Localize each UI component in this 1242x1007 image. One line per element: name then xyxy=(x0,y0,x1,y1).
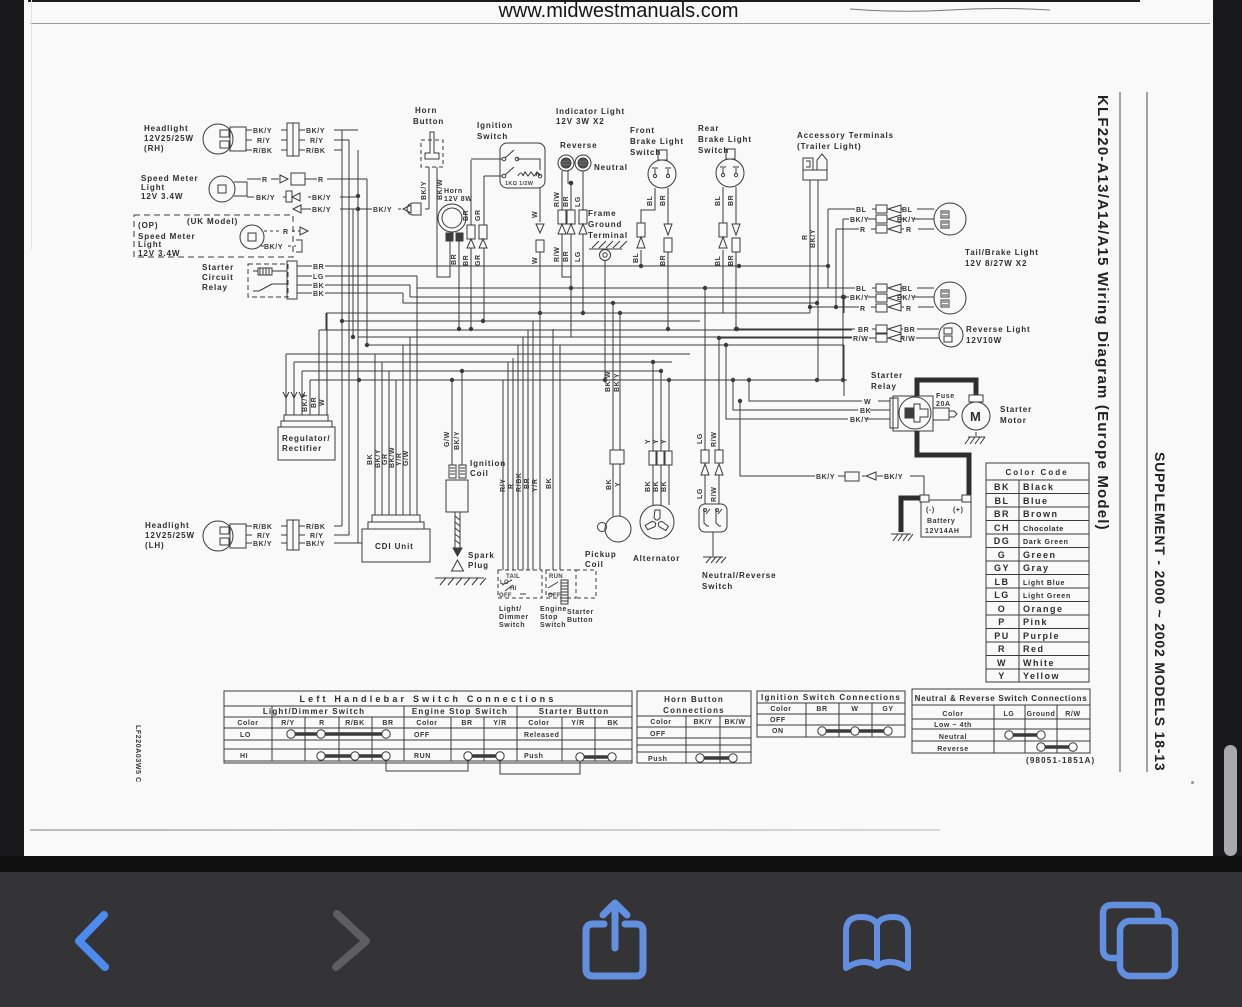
svg-text:LO: LO xyxy=(240,732,251,739)
svg-text:Y/R: Y/R xyxy=(571,720,584,727)
svg-text:LF220A03W5 C: LF220A03W5 C xyxy=(134,725,141,783)
svg-text:12V 8W: 12V 8W xyxy=(444,196,473,203)
svg-text:BK/Y: BK/Y xyxy=(375,449,382,468)
svg-text:SUPPLEMENT - 2000 ~ 2002 MODEL: SUPPLEMENT - 2000 ~ 2002 MODELS 18-13 xyxy=(1152,452,1168,771)
svg-text:Color Code: Color Code xyxy=(1005,468,1068,477)
svg-text:Reverse: Reverse xyxy=(937,746,968,753)
svg-text:Button: Button xyxy=(413,117,444,126)
svg-text:W: W xyxy=(532,257,539,264)
svg-text:R: R xyxy=(802,234,809,240)
svg-text:Tail/Brake Light: Tail/Brake Light xyxy=(965,248,1039,257)
svg-text:BK/Y: BK/Y xyxy=(454,431,461,450)
svg-text:BK: BK xyxy=(546,478,553,489)
svg-text:BR: BR xyxy=(994,509,1010,519)
svg-text:Starter: Starter xyxy=(1000,405,1032,414)
svg-text:BL: BL xyxy=(647,195,654,206)
svg-text:BR: BR xyxy=(524,478,531,489)
svg-text:BK/Y: BK/Y xyxy=(253,541,272,548)
svg-text:(-): (-) xyxy=(926,507,935,514)
svg-text:Color: Color xyxy=(650,719,671,726)
svg-text:HI: HI xyxy=(510,586,517,592)
svg-text:Horn: Horn xyxy=(444,188,463,195)
svg-text:LB: LB xyxy=(995,577,1010,587)
svg-text:White: White xyxy=(1023,658,1055,668)
svg-text:LG: LG xyxy=(994,590,1010,600)
svg-text:12V25/25W: 12V25/25W xyxy=(145,531,195,540)
svg-text:R: R xyxy=(906,306,912,313)
svg-text:Light/Dimmer Switch: Light/Dimmer Switch xyxy=(263,707,365,716)
svg-text:GY: GY xyxy=(994,563,1010,573)
svg-text:BR: BR xyxy=(904,327,915,334)
svg-text:Stop: Stop xyxy=(540,614,558,621)
svg-text:BK/Y: BK/Y xyxy=(302,393,309,412)
svg-text:12V 3.4W: 12V 3.4W xyxy=(138,249,180,258)
svg-text:LG: LG xyxy=(313,274,324,281)
svg-text:Push: Push xyxy=(524,753,544,760)
svg-text:BK/Y: BK/Y xyxy=(897,217,916,224)
svg-text:Y: Y xyxy=(998,671,1006,681)
svg-text:Color: Color xyxy=(237,720,258,727)
svg-text:Chocolate: Chocolate xyxy=(1023,524,1064,533)
svg-text:R/BK: R/BK xyxy=(306,148,326,155)
svg-text:R/Y: R/Y xyxy=(281,720,294,727)
svg-text:G/W: G/W xyxy=(403,450,410,466)
svg-text:GR: GR xyxy=(475,254,482,266)
svg-text:(UK Model): (UK Model) xyxy=(187,217,238,226)
svg-text:HI: HI xyxy=(240,753,248,760)
svg-text:Low ~ 4th: Low ~ 4th xyxy=(934,722,972,729)
svg-text:BK/Y: BK/Y xyxy=(312,207,331,214)
svg-text:(Trailer Light): (Trailer Light) xyxy=(797,142,862,151)
svg-text:Reverse Light: Reverse Light xyxy=(966,325,1031,334)
svg-text:Neutral/Reverse: Neutral/Reverse xyxy=(702,571,776,580)
svg-text:BR: BR xyxy=(660,195,667,206)
svg-text:CDI Unit: CDI Unit xyxy=(375,542,414,551)
svg-text:LG: LG xyxy=(575,196,582,207)
svg-text:BK/Y: BK/Y xyxy=(306,128,325,135)
svg-text:Fuse: Fuse xyxy=(936,393,955,400)
svg-text:BK: BK xyxy=(653,481,660,492)
svg-text:Y: Y xyxy=(645,439,652,444)
svg-text:(98051-1851A): (98051-1851A) xyxy=(1026,756,1095,765)
svg-text:BR: BR xyxy=(313,264,324,271)
svg-text:W: W xyxy=(319,399,326,406)
svg-text:R/W: R/W xyxy=(853,336,868,343)
svg-text:R: R xyxy=(906,227,912,234)
svg-text:BR: BR xyxy=(563,196,570,207)
svg-text:OFF: OFF xyxy=(414,732,430,739)
svg-text:R/Y: R/Y xyxy=(310,138,323,145)
svg-text:BK/Y: BK/Y xyxy=(256,195,275,202)
svg-text:Indicator Light: Indicator Light xyxy=(556,107,625,116)
svg-text:R/W: R/W xyxy=(711,487,718,502)
svg-text:BK/Y: BK/Y xyxy=(312,195,331,202)
svg-text:R: R xyxy=(318,177,324,184)
svg-text:Spark: Spark xyxy=(468,551,495,560)
svg-text:Gray: Gray xyxy=(1023,563,1050,573)
svg-text:Light: Light xyxy=(138,240,162,249)
svg-text:BR: BR xyxy=(728,195,735,206)
svg-text:BL: BL xyxy=(715,255,722,266)
svg-text:BK: BK xyxy=(367,454,374,465)
svg-text:BK/Y: BK/Y xyxy=(421,181,428,200)
svg-text:BK: BK xyxy=(860,408,871,415)
svg-text:GR: GR xyxy=(475,209,482,221)
svg-text:12V25/25W: 12V25/25W xyxy=(144,134,194,143)
svg-text:Speed Meter: Speed Meter xyxy=(141,174,198,183)
svg-text:Headlight: Headlight xyxy=(144,124,189,133)
svg-text:BR: BR xyxy=(311,397,318,408)
svg-text:1KΩ 1/2W: 1KΩ 1/2W xyxy=(505,181,534,187)
svg-text:DG: DG xyxy=(994,536,1011,546)
svg-text:Switch: Switch xyxy=(499,622,525,629)
svg-text:KLF220-A13/A14/A15 Wiring Diag: KLF220-A13/A14/A15 Wiring Diagram (Europ… xyxy=(1094,95,1111,531)
svg-text:CH: CH xyxy=(994,523,1010,533)
svg-text:R/Y: R/Y xyxy=(257,138,270,145)
svg-text:R: R xyxy=(508,483,515,489)
svg-text:Purple: Purple xyxy=(1023,631,1060,641)
svg-text:BK/Y: BK/Y xyxy=(850,217,869,224)
svg-text:Black: Black xyxy=(1023,482,1055,492)
svg-text:Light Green: Light Green xyxy=(1023,593,1071,600)
svg-text:ON: ON xyxy=(772,728,784,735)
svg-text:(OP): (OP) xyxy=(138,221,159,230)
svg-text:Color: Color xyxy=(942,711,963,718)
svg-text:Ground: Ground xyxy=(588,220,622,229)
svg-text:LG: LG xyxy=(1004,711,1015,718)
svg-text:R/BK: R/BK xyxy=(253,524,273,531)
svg-text:LG: LG xyxy=(575,251,582,262)
svg-text:Regulator/: Regulator/ xyxy=(282,434,331,443)
svg-text:Released: Released xyxy=(524,732,560,739)
svg-text:R: R xyxy=(998,644,1006,654)
svg-text:Pickup: Pickup xyxy=(585,550,617,559)
svg-text:12V14AH: 12V14AH xyxy=(925,528,960,535)
svg-text:Relay: Relay xyxy=(202,283,228,292)
svg-text:Switch: Switch xyxy=(630,148,661,157)
svg-text:Light: Light xyxy=(141,183,165,192)
svg-text:R: R xyxy=(283,229,289,236)
svg-text:PU: PU xyxy=(994,631,1010,641)
svg-text:BK: BK xyxy=(313,283,324,290)
svg-text:R/BK: R/BK xyxy=(253,148,273,155)
svg-text:Starter: Starter xyxy=(871,371,903,380)
svg-text:W: W xyxy=(851,706,858,713)
svg-text:Push: Push xyxy=(648,756,668,763)
svg-text:LG: LG xyxy=(697,433,704,444)
svg-text:R/Y: R/Y xyxy=(500,479,507,492)
svg-text:R/W: R/W xyxy=(554,192,561,207)
svg-text:Engine: Engine xyxy=(540,606,567,613)
svg-text:BR: BR xyxy=(728,255,735,266)
svg-text:Starter: Starter xyxy=(567,609,594,616)
svg-text:Y: Y xyxy=(661,439,668,444)
svg-text:OFF: OFF xyxy=(770,717,786,724)
svg-text:Frame: Frame xyxy=(588,209,617,218)
svg-text:Starter: Starter xyxy=(202,263,234,272)
svg-text:Front: Front xyxy=(630,126,655,135)
svg-text:Terminal: Terminal xyxy=(588,231,628,240)
svg-text:Y/R: Y/R xyxy=(532,479,539,492)
svg-text:Pink: Pink xyxy=(1023,617,1048,627)
svg-text:12V 8/27W X2: 12V 8/27W X2 xyxy=(965,259,1027,268)
svg-text:W: W xyxy=(864,399,871,406)
svg-text:BK: BK xyxy=(645,481,652,492)
svg-text:Green: Green xyxy=(1023,550,1057,560)
svg-text:Coil: Coil xyxy=(470,469,489,478)
svg-text:BL: BL xyxy=(902,286,913,293)
svg-text:BR: BR xyxy=(451,254,458,265)
svg-text:LG: LG xyxy=(697,488,704,499)
svg-text:BR: BR xyxy=(463,210,470,221)
svg-text:Light/: Light/ xyxy=(499,606,522,613)
svg-text:BR: BR xyxy=(463,255,470,266)
svg-text:BK/Y: BK/Y xyxy=(884,474,903,481)
svg-text:Red: Red xyxy=(1023,644,1045,654)
svg-text:Alternator: Alternator xyxy=(633,554,680,563)
svg-text:BR: BR xyxy=(816,706,827,713)
svg-text:G/W: G/W xyxy=(444,431,451,447)
svg-text:R/BK: R/BK xyxy=(306,524,326,531)
svg-text:Ignition: Ignition xyxy=(477,121,513,130)
svg-text:BK/Y: BK/Y xyxy=(693,719,712,726)
svg-text:BK/Y: BK/Y xyxy=(264,244,283,251)
svg-text:GY: GY xyxy=(882,706,893,713)
svg-text:Y: Y xyxy=(653,439,660,444)
svg-text:Switch: Switch xyxy=(698,146,729,155)
svg-text:Starter Button: Starter Button xyxy=(539,707,610,716)
svg-text:P: P xyxy=(998,617,1006,627)
svg-text:12V 3.4W: 12V 3.4W xyxy=(141,192,183,201)
svg-text:BK/Y: BK/Y xyxy=(373,207,392,214)
svg-text:Horn Button: Horn Button xyxy=(664,695,724,704)
svg-text:Relay: Relay xyxy=(871,382,897,391)
svg-text:Rectifier: Rectifier xyxy=(282,444,322,453)
svg-text:R/W: R/W xyxy=(900,336,915,343)
svg-text:Horn: Horn xyxy=(415,106,437,115)
svg-text:BK/W: BK/W xyxy=(437,179,444,200)
svg-text:Y/R: Y/R xyxy=(396,453,403,466)
svg-text:Y/R: Y/R xyxy=(493,720,506,727)
svg-text:O: O xyxy=(998,604,1007,614)
svg-text:BK/Y: BK/Y xyxy=(614,373,621,392)
svg-text:BK: BK xyxy=(661,481,668,492)
svg-text:BL: BL xyxy=(633,252,640,263)
svg-text:(LH): (LH) xyxy=(145,541,165,550)
svg-text:BK: BK xyxy=(607,720,618,727)
svg-text:R/W: R/W xyxy=(711,432,718,447)
svg-text:Color: Color xyxy=(416,720,437,727)
svg-text:R/Y: R/Y xyxy=(257,533,270,540)
svg-text:BL: BL xyxy=(995,496,1010,506)
svg-text:Left Handlebar Switch Connecti: Left Handlebar Switch Connections xyxy=(299,694,556,704)
svg-text:R: R xyxy=(860,306,866,313)
svg-text:RUN: RUN xyxy=(414,753,431,760)
svg-text:Switch: Switch xyxy=(702,582,733,591)
svg-text:BR: BR xyxy=(563,251,570,262)
svg-text:(+): (+) xyxy=(953,507,964,514)
svg-text:Color: Color xyxy=(528,720,549,727)
svg-text:OFF: OFF xyxy=(650,731,666,738)
svg-text:BK: BK xyxy=(994,482,1010,492)
svg-text:Brown: Brown xyxy=(1023,509,1059,519)
svg-text:Headlight: Headlight xyxy=(145,521,190,530)
svg-text:Brake Light: Brake Light xyxy=(630,137,684,146)
svg-text:R: R xyxy=(860,227,866,234)
svg-text:Accessory Terminals: Accessory Terminals xyxy=(797,131,894,140)
svg-text:BK/W: BK/W xyxy=(389,447,396,468)
svg-text:Dimmer: Dimmer xyxy=(499,614,529,621)
svg-text:BL: BL xyxy=(856,207,867,214)
svg-text:Orange: Orange xyxy=(1023,604,1064,614)
svg-text:OFF: OFF xyxy=(548,593,561,599)
svg-text:Connections: Connections xyxy=(663,706,725,715)
svg-text:BK/Y: BK/Y xyxy=(810,229,817,248)
svg-text:BK/W: BK/W xyxy=(724,719,745,726)
svg-text:BK/Y: BK/Y xyxy=(253,128,272,135)
svg-text:Engine Stop Switch: Engine Stop Switch xyxy=(412,707,508,716)
svg-text:12V10W: 12V10W xyxy=(966,336,1002,345)
svg-text:Switch: Switch xyxy=(477,132,508,141)
svg-text:12V 3W X2: 12V 3W X2 xyxy=(556,117,605,126)
svg-text:R/W: R/W xyxy=(554,247,561,262)
svg-text:BK/Y: BK/Y xyxy=(816,474,835,481)
svg-text:BK: BK xyxy=(606,479,613,490)
svg-text:Blue: Blue xyxy=(1023,496,1049,506)
svg-text:Ignition: Ignition xyxy=(470,459,506,468)
svg-text:BK/Y: BK/Y xyxy=(850,295,869,302)
svg-text:R: R xyxy=(319,720,325,727)
svg-text:Plug: Plug xyxy=(468,561,489,570)
svg-text:Brake Light: Brake Light xyxy=(698,135,752,144)
svg-text:BK: BK xyxy=(313,291,324,298)
svg-text:BL: BL xyxy=(856,286,867,293)
svg-text:GR: GR xyxy=(382,453,389,465)
svg-text:W: W xyxy=(997,658,1007,668)
svg-text:Ignition Switch Connections: Ignition Switch Connections xyxy=(761,693,901,702)
svg-text:BK/Y: BK/Y xyxy=(897,295,916,302)
svg-text:20A: 20A xyxy=(936,401,951,408)
svg-text:W: W xyxy=(532,211,539,218)
svg-text:Battery: Battery xyxy=(927,518,955,525)
svg-text:Rear: Rear xyxy=(698,124,719,133)
svg-text:R/BK: R/BK xyxy=(345,720,365,727)
svg-text:BR: BR xyxy=(858,327,869,334)
svg-text:M: M xyxy=(970,409,981,424)
svg-text:Neutral: Neutral xyxy=(939,734,967,741)
svg-text:Ground: Ground xyxy=(1027,711,1056,718)
svg-text:Neutral: Neutral xyxy=(594,163,628,172)
svg-text:(RH): (RH) xyxy=(144,144,164,153)
svg-text:Neutral & Reverse Switch Conne: Neutral & Reverse Switch Connections xyxy=(915,694,1088,703)
svg-text:Y: Y xyxy=(615,482,622,487)
svg-text:BR: BR xyxy=(461,720,472,727)
svg-text:G: G xyxy=(998,550,1007,560)
svg-text:Reverse: Reverse xyxy=(560,141,597,150)
svg-text:Motor: Motor xyxy=(1000,416,1027,425)
svg-text:LO: LO xyxy=(500,580,509,586)
svg-text:R/Y: R/Y xyxy=(310,533,323,540)
svg-text:Circuit: Circuit xyxy=(202,273,234,282)
svg-text:Light Blue: Light Blue xyxy=(1023,580,1065,587)
svg-text:BK/Y: BK/Y xyxy=(306,541,325,548)
svg-text:BL: BL xyxy=(715,195,722,206)
svg-text:Dark Green: Dark Green xyxy=(1023,539,1069,546)
svg-text:BK/Y: BK/Y xyxy=(850,417,869,424)
svg-text:BR: BR xyxy=(660,255,667,266)
svg-text:RUN: RUN xyxy=(549,574,563,580)
svg-text:R/BK: R/BK xyxy=(516,472,523,492)
svg-text:Switch: Switch xyxy=(540,622,566,629)
svg-text:R: R xyxy=(262,177,268,184)
svg-text:Button: Button xyxy=(567,617,593,624)
svg-text:OFF: OFF xyxy=(499,593,512,599)
svg-text:R/W: R/W xyxy=(1065,711,1080,718)
svg-text:Yellow: Yellow xyxy=(1023,671,1060,681)
svg-text:Color: Color xyxy=(770,706,791,713)
svg-text:BL: BL xyxy=(902,207,913,214)
svg-text:Coil: Coil xyxy=(585,560,604,569)
svg-text:BR: BR xyxy=(382,720,393,727)
